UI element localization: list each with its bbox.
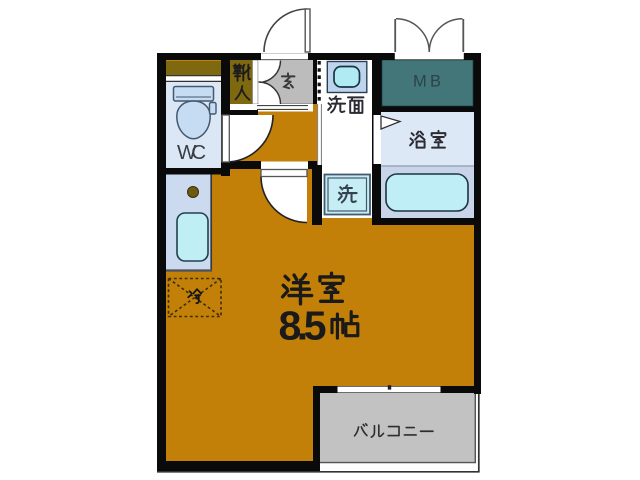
svg-text:8.5: 8.5 (279, 303, 327, 349)
svg-text:WC: WC (177, 141, 206, 164)
